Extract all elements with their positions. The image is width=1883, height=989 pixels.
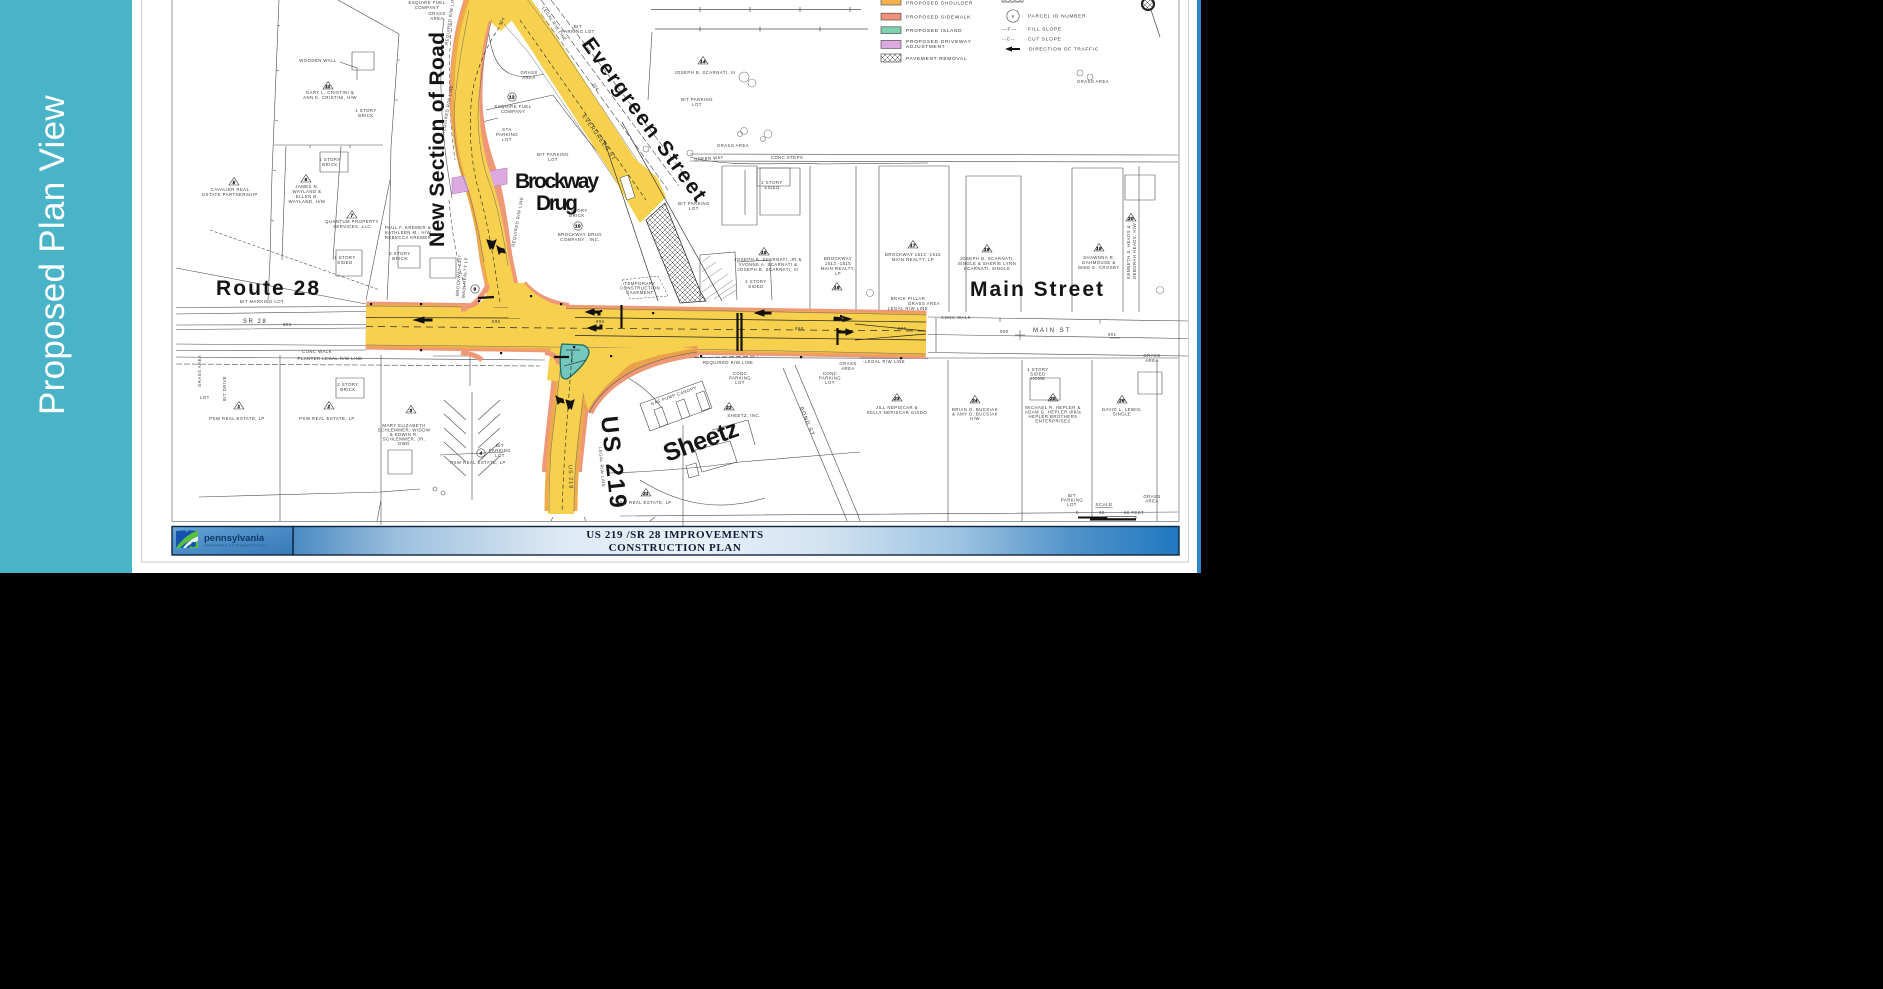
svg-text:2: 2 [327, 404, 331, 409]
svg-text:CONSTRUCTION PLAN: CONSTRUCTION PLAN [609, 542, 742, 554]
svg-text:DIRECTION OF TRAFFIC: DIRECTION OF TRAFFIC [1029, 47, 1099, 53]
svg-text:LOT: LOT [1067, 502, 1077, 507]
svg-text:7: 7 [351, 213, 354, 218]
svg-text:BOND ST: BOND ST [798, 406, 816, 437]
svg-text:BRICK: BRICK [322, 162, 337, 167]
svg-text:DWD: DWD [398, 441, 410, 446]
svg-text:SERVICES, LLC: SERVICES, LLC [333, 224, 371, 229]
svg-text:CUT SLOPE: CUT SLOPE [1028, 37, 1061, 43]
svg-text:AREA: AREA [1145, 358, 1159, 363]
svg-text:Drug: Drug [536, 192, 578, 215]
svg-text:PROPOSED SHOULDER: PROPOSED SHOULDER [906, 0, 973, 6]
svg-text:MIKE E. CROSBY: MIKE E. CROSBY [1078, 265, 1119, 270]
svg-text:893: 893 [283, 322, 292, 327]
svg-text:PROPOSED DRIVEWAY: PROPOSED DRIVEWAY [906, 39, 972, 45]
svg-text:Route 28: Route 28 [216, 277, 319, 300]
svg-text:Brockway: Brockway [515, 170, 599, 193]
svg-text:BRICK: BRICK [392, 256, 407, 261]
svg-text:COMPANY: COMPANY [415, 5, 440, 10]
svg-text:SCALE: SCALE [1095, 502, 1112, 507]
svg-text:REBECCA KREMER: REBECCA KREMER [385, 235, 431, 240]
svg-text:CONC WALK: CONC WALK [941, 315, 971, 320]
svg-text:GRASS AREA: GRASS AREA [717, 143, 749, 148]
svg-text:—F—: —F— [1002, 27, 1017, 33]
svg-text:896: 896 [596, 319, 605, 324]
svg-text:AREA: AREA [522, 75, 536, 80]
svg-text:PROPOSED SIDEWALK: PROPOSED SIDEWALK [906, 14, 971, 20]
svg-text:11: 11 [325, 84, 331, 89]
svg-text:ENTERPRISES: ENTERPRISES [1035, 419, 1070, 424]
svg-text:MAIN ST: MAIN ST [1033, 328, 1071, 334]
svg-text:17: 17 [910, 243, 916, 248]
svg-text:DEBORAH HEADS, H/W: DEBORAH HEADS, H/W [1132, 222, 1137, 279]
svg-text:19: 19 [1096, 246, 1102, 251]
svg-text:LEGAL R/W LINE: LEGAL R/W LINE [888, 306, 928, 311]
svg-text:LOT: LOT [692, 102, 702, 107]
svg-text:24: 24 [971, 398, 978, 403]
svg-text:PARKING LOT: PARKING LOT [561, 29, 595, 34]
svg-text:ANN K. CRISTINI, H/W: ANN K. CRISTINI, H/W [303, 95, 357, 100]
svg-text:895: 895 [492, 319, 501, 324]
svg-text:LOT: LOT [200, 395, 210, 400]
svg-text:Main Street: Main Street [970, 278, 1103, 301]
svg-text:JOSEPH B. SCARNATI, III: JOSEPH B. SCARNATI, III [674, 70, 735, 75]
svg-text:REQUIRED R/W LINE: REQUIRED R/W LINE [510, 196, 524, 247]
svg-text:12: 12 [509, 95, 515, 100]
svg-text:--C--: --C-- [1002, 37, 1015, 43]
svg-text:LOT: LOT [548, 157, 558, 162]
svg-text:LP: LP [835, 271, 841, 276]
svg-text:898: 898 [795, 326, 804, 331]
svg-text:LOT: LOT [502, 137, 512, 142]
svg-text:ESTATE PARTNERSHIP: ESTATE PARTNERSHIP [202, 192, 258, 197]
svg-text:9: 9 [474, 287, 477, 292]
svg-text:PAVEMENT REMOVAL: PAVEMENT REMOVAL [906, 56, 967, 62]
svg-text:SIDED: SIDED [764, 185, 779, 190]
svg-text:PSW REAL ESTATE, LP: PSW REAL ESTATE, LP [450, 460, 506, 465]
svg-text:EASEMENT: EASEMENT [626, 290, 653, 295]
svg-text:LOT: LOT [689, 206, 699, 211]
svg-text:20: 20 [1127, 216, 1134, 221]
svg-text:WAYLAND, H/W: WAYLAND, H/W [289, 199, 326, 204]
svg-text:204: 204 [591, 82, 600, 92]
svg-text:SR 28: SR 28 [243, 319, 267, 325]
svg-text:GRASS AREA: GRASS AREA [1077, 79, 1109, 84]
svg-text:GAS PUMP CANOPY: GAS PUMP CANOPY [650, 385, 697, 406]
svg-text:16: 16 [834, 285, 840, 290]
svg-text:SCARNATI, SINGLE: SCARNATI, SINGLE [964, 266, 1011, 271]
svg-text:900: 900 [1000, 329, 1009, 334]
svg-text:9: 9 [1012, 14, 1015, 19]
svg-text:WOODEN WALL: WOODEN WALL [299, 58, 337, 63]
svg-text:22: 22 [725, 405, 732, 410]
svg-text:KELLY NEPISCAR GUIDO: KELLY NEPISCAR GUIDO [867, 410, 928, 415]
svg-text:SIDED: SIDED [748, 284, 763, 289]
svg-text:60 FEET: 60 FEET [1124, 510, 1144, 515]
svg-text:0: 0 [1076, 510, 1079, 515]
svg-text:COMPANY: COMPANY [501, 109, 526, 114]
svg-text:AREA: AREA [430, 16, 444, 21]
svg-text:FILL SLOPE: FILL SLOPE [1028, 27, 1062, 33]
svg-text:REQUIRED R/W LINE: REQUIRED R/W LINE [703, 360, 754, 365]
svg-text:CONC STEPS: CONC STEPS [771, 155, 803, 160]
svg-text:H/W: H/W [970, 416, 980, 421]
svg-text:LOT: LOT [735, 380, 745, 385]
svg-text:SIDED: SIDED [337, 260, 352, 265]
svg-text:BRICK: BRICK [340, 387, 355, 392]
svg-text:CONC WALK: CONC WALK [302, 349, 332, 354]
svg-text:15: 15 [761, 250, 767, 255]
svg-text:SINGLE: SINGLE [1113, 412, 1131, 417]
svg-text:-LEGAL R/W LINE: -LEGAL R/W LINE [863, 359, 905, 364]
svg-text:901: 901 [1108, 332, 1117, 337]
svg-text:HOME: HOME [1031, 376, 1046, 381]
svg-text:PARCEL ID NUMBER: PARCEL ID NUMBER [1028, 13, 1086, 19]
svg-text:GRASS AREA: GRASS AREA [197, 355, 202, 387]
svg-text:BRICK: BRICK [358, 113, 373, 118]
svg-text:BIT DRIVE: BIT DRIVE [222, 376, 227, 401]
svg-text:pennsylvania: pennsylvania [204, 533, 265, 544]
svg-text:23: 23 [893, 396, 900, 401]
svg-text:US 219: US 219 [595, 415, 631, 509]
svg-text:4: 4 [480, 451, 483, 456]
svg-text:DEPARTMENT OF TRANSPORTATION: DEPARTMENT OF TRANSPORTATION [204, 544, 267, 548]
svg-text:6: 6 [305, 177, 308, 182]
svg-text:JOSEPH B. SCARNATI, III: JOSEPH B. SCARNATI, III [737, 267, 798, 272]
svg-text:25: 25 [1049, 396, 1056, 401]
svg-text:KENNETH S. HEADS &: KENNETH S. HEADS & [1126, 225, 1131, 279]
svg-text:US 219 /SR 28 IMPROVEMENTS: US 219 /SR 28 IMPROVEMENTS [586, 529, 764, 541]
svg-text:PLANTER LEGAL R/W LINE: PLANTER LEGAL R/W LINE [298, 356, 363, 361]
svg-text:New Section of Road: New Section of Road [426, 32, 449, 247]
svg-text:PSW REAL ESTATE, LP: PSW REAL ESTATE, LP [209, 416, 265, 421]
svg-text:18: 18 [984, 247, 990, 252]
svg-text:COMPANY , INC.: COMPANY , INC. [560, 237, 600, 242]
svg-text:1: 1 [238, 404, 241, 409]
svg-text:AREA: AREA [1145, 499, 1159, 504]
svg-text:ADJUSTMENT: ADJUSTMENT [906, 44, 945, 50]
svg-text:10: 10 [575, 224, 581, 229]
svg-text:5: 5 [233, 180, 236, 185]
svg-text:AREA: AREA [841, 366, 855, 371]
svg-text:PSW REAL ESTATE, LP: PSW REAL ESTATE, LP [299, 416, 355, 421]
svg-text:PROPOSED ISLAND: PROPOSED ISLAND [906, 28, 962, 34]
svg-text:MAIN REALTY, LP: MAIN REALTY, LP [892, 257, 934, 262]
svg-text:26: 26 [1118, 398, 1125, 403]
svg-text:US 219: US 219 [567, 465, 574, 490]
svg-text:21: 21 [642, 491, 649, 496]
svg-text:3: 3 [410, 408, 413, 413]
svg-text:899: 899 [898, 326, 907, 331]
svg-text:LOT: LOT [825, 380, 835, 385]
svg-text:30: 30 [1099, 510, 1105, 515]
svg-text:LOT: LOT [495, 453, 505, 458]
svg-text:14: 14 [700, 59, 706, 64]
